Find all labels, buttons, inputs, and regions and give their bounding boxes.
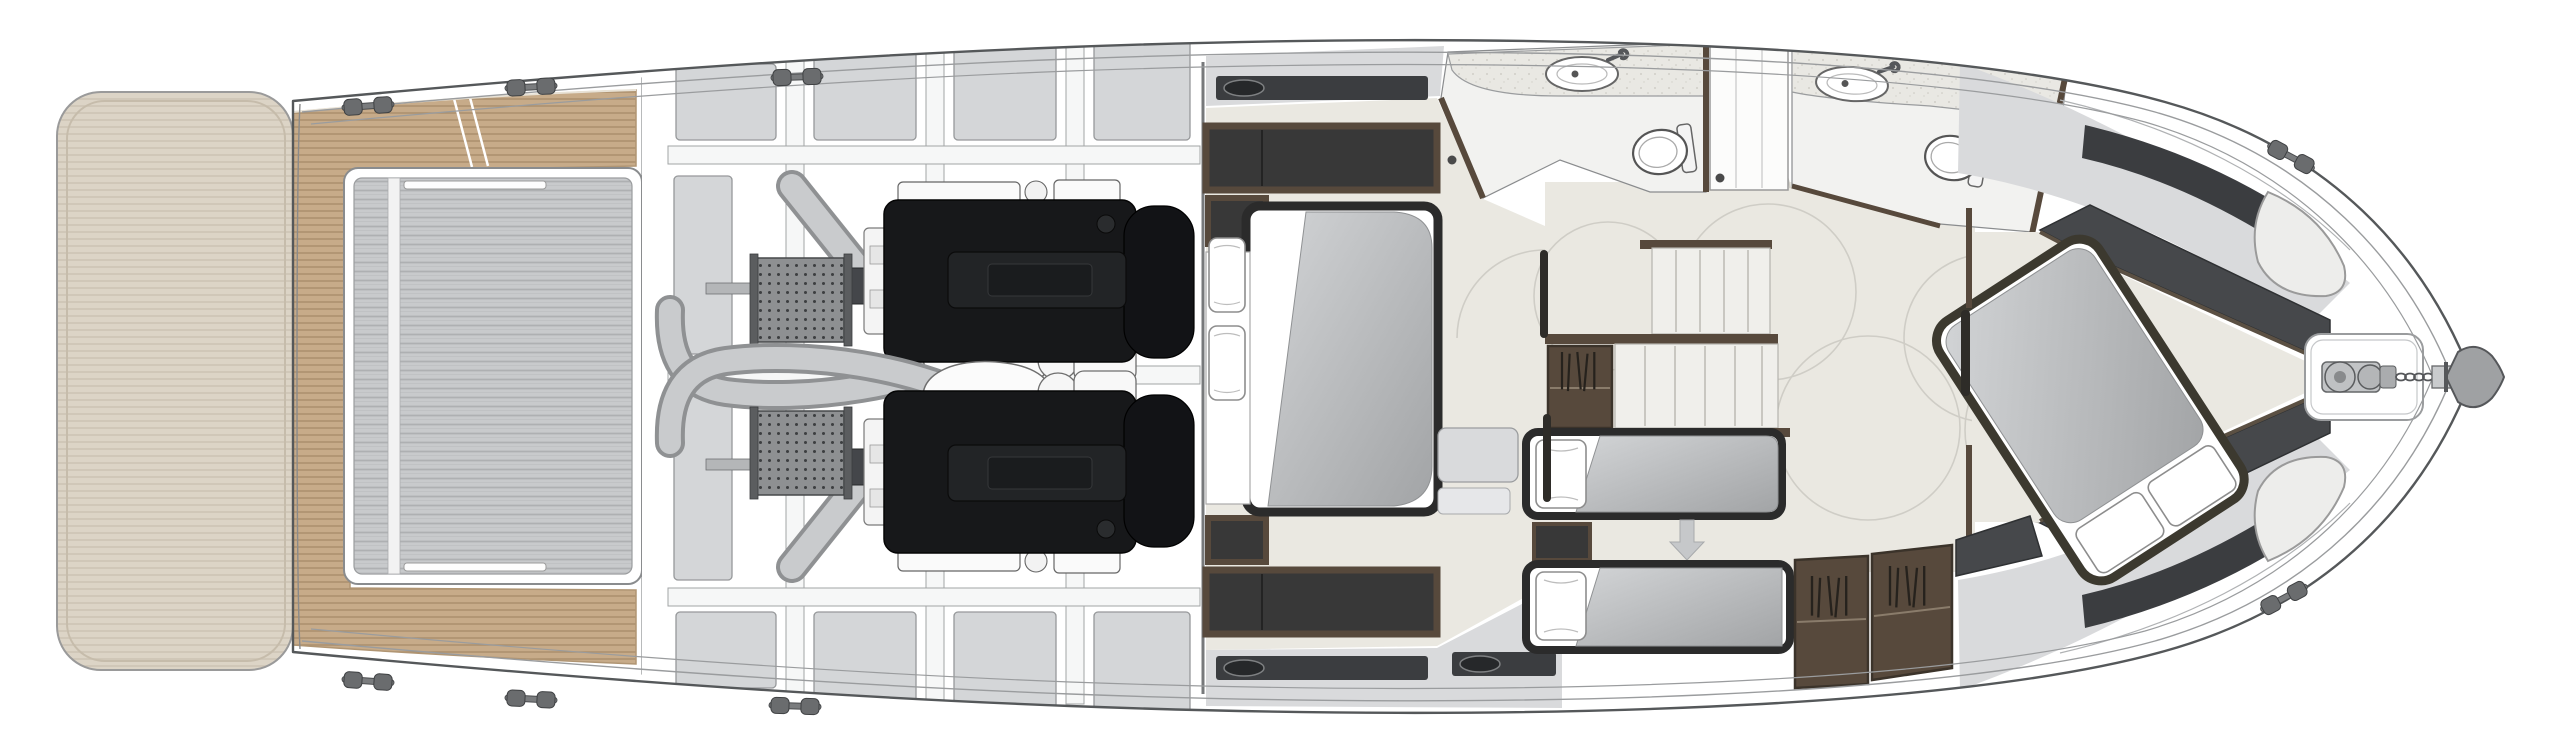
hatch-handle — [404, 181, 546, 189]
door-handle — [1716, 174, 1725, 183]
wall — [1966, 208, 1972, 308]
step — [1438, 488, 1510, 514]
bedside-panel — [1534, 524, 1590, 560]
door-handle — [1448, 156, 1457, 165]
stair-lower-run — [1615, 344, 1778, 428]
wall — [1966, 445, 1972, 545]
master-bed — [1206, 206, 1438, 512]
shower — [1710, 44, 1788, 190]
interior — [293, 36, 2423, 718]
stair-upper-run — [1652, 248, 1770, 334]
swim-platform — [57, 92, 293, 670]
engine-room — [642, 36, 1204, 718]
tender-garage-hatch — [344, 168, 642, 584]
floor-plan-svg — [0, 0, 2560, 753]
floor-plan-stage — [0, 0, 2560, 753]
wardrobe — [1548, 346, 1612, 428]
door-leaf — [1540, 250, 1548, 338]
door-leaf — [1543, 414, 1551, 502]
hatch-handle — [404, 563, 546, 571]
step-seat — [1438, 428, 1518, 482]
door-leaf — [1961, 310, 1970, 396]
